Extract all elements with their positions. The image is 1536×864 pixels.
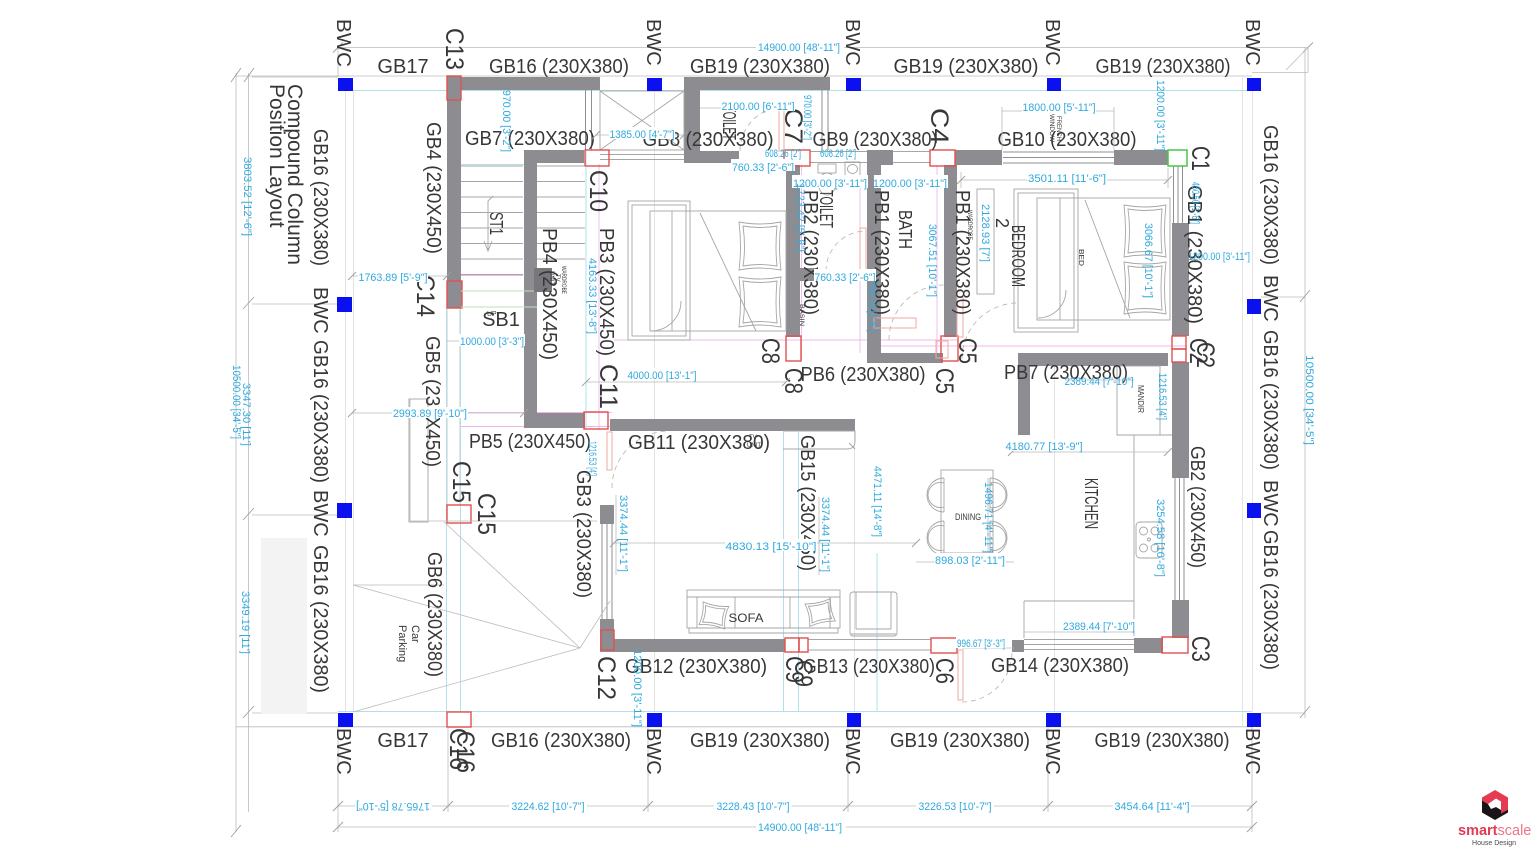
- svg-text:C8: C8: [756, 338, 784, 364]
- svg-text:GB13 (230X380): GB13 (230X380): [803, 656, 935, 678]
- svg-text:3501.11 [11'-6"]: 3501.11 [11'-6"]: [1028, 173, 1106, 185]
- svg-text:4471.11 [14'-8"]: 4471.11 [14'-8"]: [871, 466, 883, 537]
- svg-text:TV: TV: [749, 435, 757, 441]
- svg-text:4000.00 [13'-1"]: 4000.00 [13'-1"]: [628, 370, 697, 382]
- svg-text:GB19 (230X380): GB19 (230X380): [690, 56, 830, 78]
- svg-text:760.33 [2'-6"]: 760.33 [2'-6"]: [732, 162, 794, 174]
- svg-text:C5: C5: [930, 368, 958, 394]
- svg-text:608.26 [2']: 608.26 [2']: [765, 148, 801, 160]
- svg-text:GB16 (230X380): GB16 (230X380): [1259, 530, 1281, 670]
- svg-text:BASIN: BASIN: [798, 304, 804, 326]
- svg-text:2: 2: [992, 218, 1012, 228]
- svg-text:ST1: ST1: [486, 212, 506, 235]
- svg-text:SOFA: SOFA: [729, 611, 764, 625]
- svg-text:3224.62 [10'-7"]: 3224.62 [10'-7"]: [512, 801, 585, 813]
- svg-text:C10: C10: [584, 170, 612, 212]
- svg-text:14900.00 [48'-11"]: 14900.00 [48'-11"]: [758, 42, 840, 54]
- svg-text:GB4 (230X450): GB4 (230X450): [422, 122, 444, 254]
- svg-text:DINING: DINING: [955, 512, 981, 522]
- svg-text:608.26 [2']: 608.26 [2']: [820, 148, 856, 160]
- svg-text:Car: Car: [409, 625, 421, 643]
- svg-text:WARDROBE: WARDROBE: [966, 210, 972, 240]
- svg-text:BED: BED: [1077, 249, 1084, 266]
- svg-text:1216.53 [4']: 1216.53 [4']: [586, 441, 598, 476]
- svg-text:BWC: BWC: [841, 728, 863, 775]
- svg-text:3347.30 [11']: 3347.30 [11']: [240, 383, 252, 446]
- svg-text:WINDOW: WINDOW: [1048, 114, 1055, 143]
- svg-text:2993.89 [9'-10"]: 2993.89 [9'-10"]: [393, 408, 467, 420]
- svg-text:GB3 (230X380): GB3 (230X380): [572, 470, 594, 598]
- svg-text:3349.19 [11']: 3349.19 [11']: [239, 591, 251, 654]
- svg-text:GB2 (230X450): GB2 (230X450): [1186, 446, 1208, 568]
- svg-text:GB5 (230X450): GB5 (230X450): [421, 336, 443, 467]
- svg-text:C4: C4: [925, 108, 953, 144]
- svg-text:GB17: GB17: [377, 730, 428, 752]
- svg-text:TOILET: TOILET: [816, 190, 836, 228]
- svg-text:House Design: House Design: [1472, 840, 1516, 847]
- svg-text:KITCHEN: KITCHEN: [1081, 478, 1101, 529]
- svg-text:PB4 (230X450): PB4 (230X450): [538, 228, 560, 360]
- svg-text:1496.71 [4'-11"]: 1496.71 [4'-11"]: [982, 482, 994, 553]
- svg-text:C1: C1: [1186, 146, 1214, 171]
- svg-text:BWC: BWC: [1259, 275, 1281, 322]
- svg-text:BWC: BWC: [642, 19, 664, 66]
- svg-text:3254.58 [10'-8"]: 3254.58 [10'-8"]: [1154, 499, 1166, 577]
- svg-text:3226.53 [10'-7"]: 3226.53 [10'-7"]: [919, 801, 992, 813]
- svg-text:GB19 (230X380): GB19 (230X380): [890, 730, 1030, 752]
- svg-text:C11: C11: [594, 364, 622, 409]
- svg-text:3228.43 [10'-7"]: 3228.43 [10'-7"]: [717, 801, 790, 813]
- svg-text:UNIT: UNIT: [747, 443, 761, 449]
- svg-text:BWC: BWC: [1241, 728, 1263, 775]
- svg-text:PB5 (230X450): PB5 (230X450): [469, 431, 591, 453]
- svg-text:PB6 (230X380): PB6 (230X380): [801, 364, 926, 386]
- svg-text:1200.00 [3'-11"]: 1200.00 [3'-11"]: [873, 178, 947, 190]
- svg-text:GB16 (230X380): GB16 (230X380): [309, 545, 331, 693]
- svg-text:PB1 (230X380): PB1 (230X380): [951, 190, 973, 315]
- svg-text:10500.00 [34'-5"]: 10500.00 [34'-5"]: [1303, 355, 1315, 445]
- svg-text:2389.44 [7'-10"]: 2389.44 [7'-10"]: [1065, 376, 1134, 388]
- svg-text:BWC: BWC: [1041, 728, 1063, 775]
- svg-text:BEDROOM: BEDROOM: [1008, 225, 1028, 287]
- svg-text:GB17: GB17: [377, 56, 428, 78]
- svg-text:BWC: BWC: [841, 19, 863, 66]
- svg-text:1216.53 [4']: 1216.53 [4']: [1156, 373, 1168, 420]
- svg-text:4180.77 [13'-9"]: 4180.77 [13'-9"]: [1006, 441, 1083, 453]
- svg-text:BWC: BWC: [332, 728, 354, 775]
- svg-text:C8: C8: [779, 368, 807, 394]
- svg-text:GB19 (230X380): GB19 (230X380): [690, 730, 830, 752]
- svg-text:BWC: BWC: [1241, 19, 1263, 66]
- svg-text:GB16 (230X380): GB16 (230X380): [1259, 125, 1281, 265]
- svg-text:GB6 (230X380): GB6 (230X380): [423, 552, 445, 677]
- svg-text:1763.89 [5'-9"]: 1763.89 [5'-9"]: [359, 272, 428, 284]
- svg-text:GB19 (230X380): GB19 (230X380): [1095, 730, 1230, 752]
- svg-text:3067.51 [10'-1"]: 3067.51 [10'-1"]: [926, 224, 938, 297]
- svg-text:Parking: Parking: [396, 625, 408, 662]
- svg-text:4163.33 [13'-8"]: 4163.33 [13'-8"]: [586, 258, 598, 334]
- svg-text:C13: C13: [440, 28, 468, 70]
- svg-text:Position Layout: Position Layout: [265, 84, 288, 228]
- svg-text:C9: C9: [789, 660, 817, 687]
- svg-text:898.03 [2'-11"]: 898.03 [2'-11"]: [935, 555, 1005, 567]
- svg-text:BATH: BATH: [895, 210, 915, 249]
- svg-text:1385.00 [4'-7"]: 1385.00 [4'-7"]: [610, 129, 675, 141]
- svg-text:3803.52 [12'-6"]: 3803.52 [12'-6"]: [241, 157, 253, 236]
- svg-text:GB16 (230X380): GB16 (230X380): [309, 340, 331, 483]
- svg-text:GB10 (230X380): GB10 (230X380): [998, 129, 1137, 151]
- svg-text:1765.78 [5'-10"]: 1765.78 [5'-10"]: [356, 800, 430, 812]
- svg-text:GB16 (230X380): GB16 (230X380): [1259, 330, 1281, 470]
- svg-text:C16: C16: [451, 731, 479, 773]
- svg-text:C3: C3: [1186, 636, 1214, 662]
- svg-text:970.00 [3'-2"]: 970.00 [3'-2"]: [500, 90, 512, 152]
- svg-text:smartscale: smartscale: [1458, 823, 1531, 839]
- svg-text:BWC: BWC: [1041, 19, 1063, 66]
- svg-text:C15: C15: [447, 461, 475, 503]
- svg-text:C2: C2: [1191, 342, 1219, 368]
- svg-text:4830.13 [15'-10"]: 4830.13 [15'-10"]: [726, 541, 817, 553]
- svg-text:C12: C12: [592, 656, 620, 700]
- svg-text:GB19 (230X380): GB19 (230X380): [1096, 56, 1231, 78]
- svg-text:BWC: BWC: [309, 490, 331, 537]
- svg-text:C6: C6: [930, 658, 958, 684]
- svg-text:3374.44 [11'-1"]: 3374.44 [11'-1"]: [819, 497, 831, 572]
- svg-text:970.00 [3'-2"]: 970.00 [3'-2"]: [801, 95, 813, 140]
- svg-text:UP: UP: [487, 311, 497, 318]
- svg-text:GB16 (230X380): GB16 (230X380): [489, 56, 629, 78]
- svg-text:1723.42 [5'-8"]: 1723.42 [5'-8"]: [794, 183, 806, 252]
- svg-text:UNIT: UNIT: [548, 271, 554, 285]
- svg-text:GB7 (230X380): GB7 (230X380): [465, 128, 595, 150]
- svg-text:BWC: BWC: [332, 19, 354, 67]
- svg-text:3454.64 [11'-4"]: 3454.64 [11'-4"]: [1115, 801, 1190, 813]
- svg-text:1200.00 [3'-11"]: 1200.00 [3'-11"]: [1188, 251, 1250, 263]
- svg-text:3066.67 [10'-1"]: 3066.67 [10'-1"]: [1142, 223, 1154, 298]
- svg-text:1200.00 [3'-11"]: 1200.00 [3'-11"]: [631, 649, 643, 727]
- svg-text:1200.00 [3'-11"]: 1200.00 [3'-11"]: [1154, 80, 1166, 151]
- svg-text:2389.44 [7'-10"]: 2389.44 [7'-10"]: [1063, 621, 1135, 633]
- svg-text:GB12 (230X380): GB12 (230X380): [625, 656, 767, 678]
- svg-text:450.50 [1'-6"]: 450.50 [1'-6"]: [1189, 182, 1201, 224]
- svg-text:GB14 (230X380): GB14 (230X380): [991, 655, 1129, 677]
- svg-text:2128.93 [7']: 2128.93 [7']: [979, 204, 991, 262]
- svg-text:2100.00 [6'-11"]: 2100.00 [6'-11"]: [722, 101, 795, 113]
- svg-text:14900.00 [48'-11"]: 14900.00 [48'-11"]: [758, 822, 842, 834]
- svg-text:GB16 (230X380): GB16 (230X380): [309, 129, 331, 266]
- svg-text:1800.00 [5'-11"]: 1800.00 [5'-11"]: [1023, 102, 1096, 114]
- svg-text:1000.00 [3'-3"]: 1000.00 [3'-3"]: [460, 336, 524, 348]
- svg-text:MANDIR: MANDIR: [1136, 385, 1145, 413]
- svg-text:3374.44 [11'-1"]: 3374.44 [11'-1"]: [617, 495, 629, 572]
- svg-text:760.33 [2'-6"]: 760.33 [2'-6"]: [866, 282, 878, 332]
- svg-text:C15: C15: [472, 493, 500, 535]
- svg-text:BWC: BWC: [1259, 480, 1281, 527]
- svg-text:BWC: BWC: [309, 287, 331, 334]
- svg-text:FRENCH: FRENCH: [1055, 116, 1062, 141]
- svg-text:996.67 [3'-3"]: 996.67 [3'-3"]: [957, 638, 1005, 650]
- svg-text:C5: C5: [953, 338, 981, 364]
- svg-text:GB19 (230X380): GB19 (230X380): [894, 56, 1039, 78]
- svg-text:GB16 (230X380): GB16 (230X380): [491, 730, 631, 752]
- svg-text:BWC: BWC: [642, 728, 664, 775]
